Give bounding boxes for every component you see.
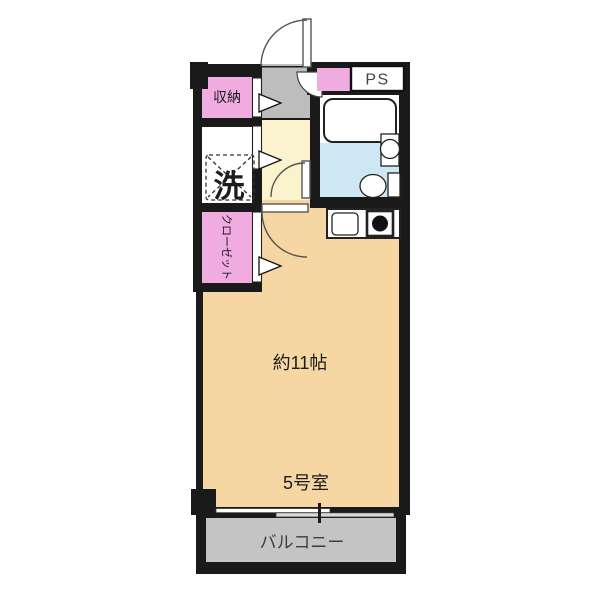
window-rail-left [216,509,330,513]
wall-left-upper [193,64,202,292]
wall-laundry-closet [193,203,262,212]
entrance-threshold-line [262,66,307,68]
floor-plan-canvas: PS 収納 洗 クローゼット 約11帖 5号室 バルコニー [0,0,600,600]
entrance-door-arc [261,20,307,66]
stove-burner-icon [372,216,388,232]
room-size-label: 約11帖 [273,353,328,373]
bathroom-door-leaf [302,161,310,198]
window-rail-right [276,513,394,517]
main-room-door-leaf [262,204,308,212]
wall-left-lower [196,292,203,510]
toilet-tank [388,173,400,197]
window-center-tick [318,503,321,523]
balcony-label: バルコニー [260,533,345,552]
genkan-step-line [262,118,310,120]
main-room-floor-left [202,284,262,508]
wall-balcony-bottom [196,562,406,574]
kitchen [327,209,400,238]
wall-bath-bottom [310,197,410,208]
floor-plan-svg: PS 収納 洗 クローゼット 約11帖 5号室 バルコニー [0,0,600,600]
toilet-bowl [360,175,386,198]
entrance-door-leaf [303,19,311,67]
kitchen-sink [332,213,358,235]
wall-closet-bottom [193,283,262,292]
wall-storage-laundry [193,118,262,127]
washbasin [381,140,400,159]
wall-right [399,62,410,515]
entry-side-cabinet [317,68,350,91]
pipe-space: PS [317,66,404,91]
storage-label: 収納 [213,89,241,105]
pipe-space-label: PS [365,72,389,89]
closet-label: クローゼット [220,214,233,280]
room-number-label: 5号室 [283,473,329,493]
laundry-label: 洗 [214,169,245,204]
